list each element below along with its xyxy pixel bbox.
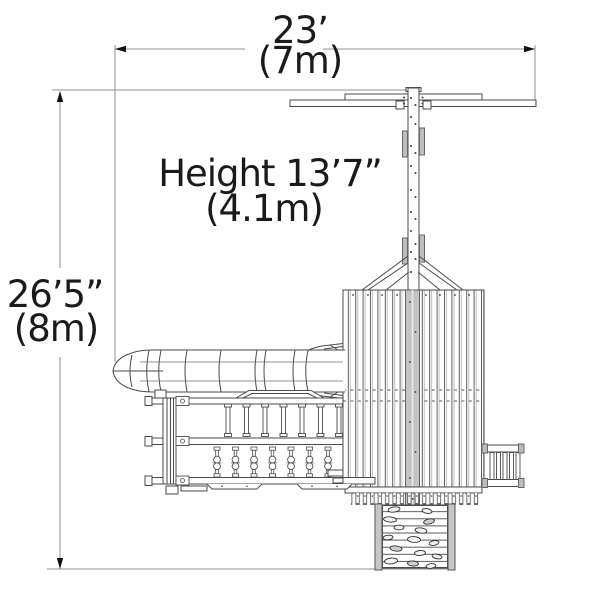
ladder-rail-top (483, 445, 523, 452)
deck-railing (145, 390, 375, 494)
swing-beam (408, 88, 419, 290)
dimension-width: 23’ (7m) (115, 9, 535, 82)
arrow-right-icon (524, 46, 535, 52)
depth-dimension-metric: (8m) (14, 307, 98, 350)
railing-balusters (225, 404, 343, 437)
arrow-up-icon (57, 91, 63, 102)
ladder-rungs (490, 453, 520, 481)
roof-slat-ends (351, 493, 481, 505)
rail-hinge-middle (176, 437, 189, 446)
roof (343, 290, 484, 505)
width-dimension-metric: (7m) (258, 39, 342, 82)
height-label-metric: (4.1m) (205, 187, 323, 230)
climber-posts (212, 447, 332, 477)
access-ladder (482, 444, 524, 488)
rock-climbing-wall (375, 504, 455, 570)
arrow-down-icon (57, 558, 63, 569)
ladder-rail-bottom (483, 480, 523, 487)
arrow-left-icon (115, 46, 126, 52)
railing-hump-board (236, 391, 324, 399)
crossbar-bracket-right (423, 101, 431, 109)
rail-hinge-bottom (176, 476, 189, 485)
diagram-canvas: 23’ (7m) 26’5” (8m) Height 13’7” (4.1m) (0, 0, 600, 600)
corner-post-cap (155, 390, 166, 398)
rail-hinge-top (176, 397, 189, 406)
rock-wall-rail-left (375, 504, 382, 570)
roof-edge-board (345, 487, 482, 493)
dimension-depth: 26’5” (8m) (7, 91, 104, 569)
height-annotation: Height 13’7” (4.1m) (158, 152, 382, 230)
rock-wall-rail-right (448, 504, 455, 570)
playset-top-view-diagram: 23’ (7m) 26’5” (8m) Height 13’7” (4.1m) (0, 0, 600, 600)
crossbar-bracket-left (396, 101, 404, 109)
left-end-post (163, 398, 176, 484)
